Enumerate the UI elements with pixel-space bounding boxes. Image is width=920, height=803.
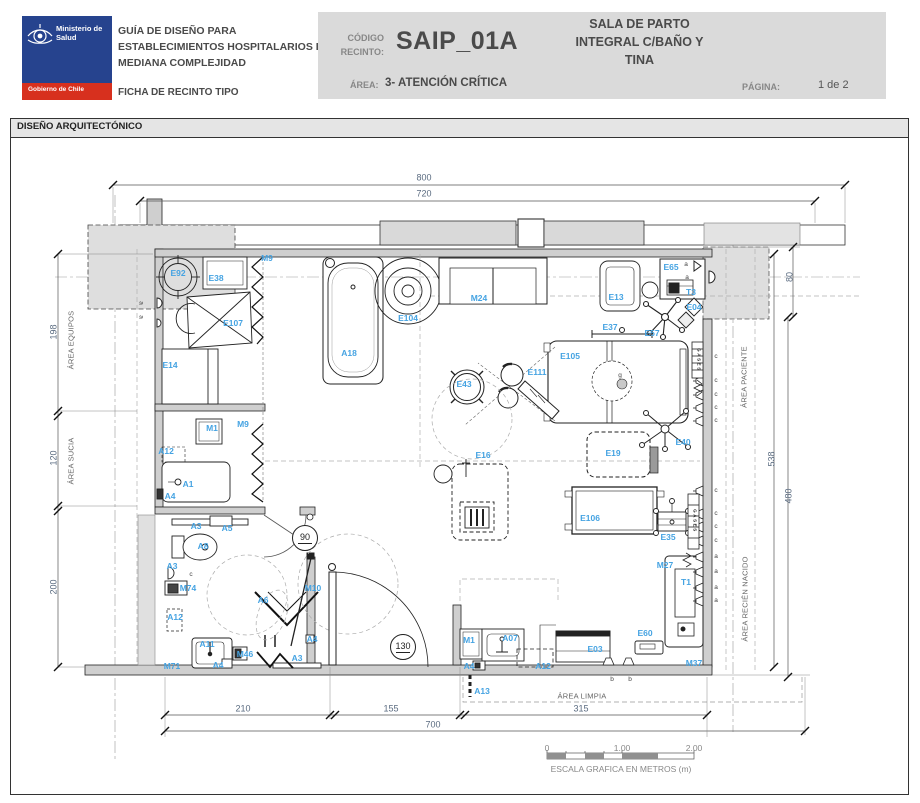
logo-red-block: Gobierno de Chile <box>22 83 112 100</box>
equipment-e19-icon <box>587 432 658 477</box>
room-code-value: SAIP_01A <box>396 27 518 56</box>
ceiling-light-e104-icon <box>375 258 441 324</box>
rail-e37-icon <box>592 328 652 339</box>
document-page: Ministerio de Salud Gobierno de Chile GU… <box>0 0 920 803</box>
equipment-e35-icon <box>654 499 691 536</box>
shelf-m1-icon <box>196 419 222 444</box>
table-e106-icon <box>565 487 664 534</box>
cabinet-e38-icon <box>203 257 247 289</box>
bathroom-fixtures <box>165 516 321 668</box>
floor-plan-svg <box>10 137 909 793</box>
stool-e43-icon <box>432 370 512 459</box>
equipment-e04-icon <box>678 298 703 328</box>
area-label: ÁREA: <box>350 80 379 90</box>
door-130-arc <box>329 564 429 668</box>
document-subtitle: FICHA DE RECINTO TIPO <box>118 87 239 98</box>
door-90-arc <box>264 514 313 557</box>
chile-coat-of-arms-icon <box>25 22 55 52</box>
sofa-m24-icon <box>439 258 547 304</box>
section-title: DISEÑO ARQUITECTÓNICO <box>11 119 908 138</box>
logo-ministry-text: Ministerio de Salud <box>56 24 112 42</box>
delivery-bed-e105-icon <box>465 341 688 425</box>
turning-circles <box>207 534 398 644</box>
chair-e13-icon <box>600 261 658 311</box>
iv-stand-e57-icon <box>644 298 685 340</box>
logo-government-text: Gobierno de Chile <box>28 86 84 93</box>
outlet-e60-icon <box>635 641 663 654</box>
equipment-e16-icon <box>434 459 508 540</box>
counter-e03-icon <box>540 625 610 665</box>
room-name: SALA DE PARTO INTEGRAL C/BAÑO Y TINA <box>537 15 742 69</box>
gobierno-de-chile-logo: Ministerio de Salud Gobierno de Chile <box>22 16 112 100</box>
page-number: 1 de 2 <box>818 79 849 91</box>
area-value: 3- ATENCIÓN CRÍTICA <box>385 77 507 89</box>
scale-bar <box>547 750 694 759</box>
floor-plan: M9E92E38E107E14A18E104M24E13E65T3E04E57E… <box>10 137 909 793</box>
curtain-icon <box>252 257 263 502</box>
cart-e14-icon <box>162 349 218 404</box>
room-code-label: CÓDIGO RECINTO: <box>322 31 384 59</box>
sink-a07-icon <box>460 629 553 697</box>
sink-a1-icon <box>157 447 230 502</box>
page-label: PÁGINA: <box>742 82 780 92</box>
logo-blue-block: Ministerio de Salud <box>22 16 112 83</box>
document-title: GUÍA DE DISEÑO PARA ESTABLECIMIENTOS HOS… <box>118 23 330 71</box>
bathtub-icon <box>323 257 383 384</box>
